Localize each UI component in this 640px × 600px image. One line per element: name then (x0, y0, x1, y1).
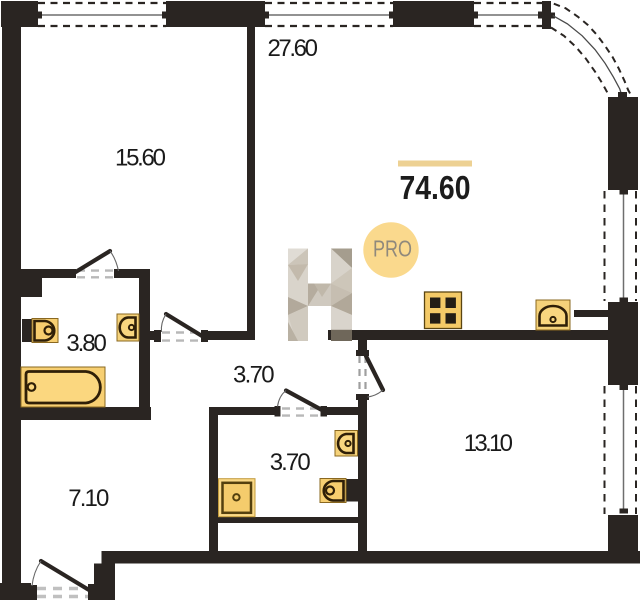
svg-text:PRO: PRO (373, 235, 412, 261)
svg-text:3.70: 3.70 (233, 362, 275, 389)
svg-text:7.10: 7.10 (68, 485, 109, 512)
svg-text:13.10: 13.10 (464, 430, 513, 457)
svg-text:74.60: 74.60 (400, 169, 471, 206)
svg-text:3.70: 3.70 (270, 449, 311, 476)
svg-text:27.60: 27.60 (267, 35, 318, 62)
svg-text:3.80: 3.80 (66, 330, 106, 357)
svg-text:15.60: 15.60 (115, 145, 166, 172)
